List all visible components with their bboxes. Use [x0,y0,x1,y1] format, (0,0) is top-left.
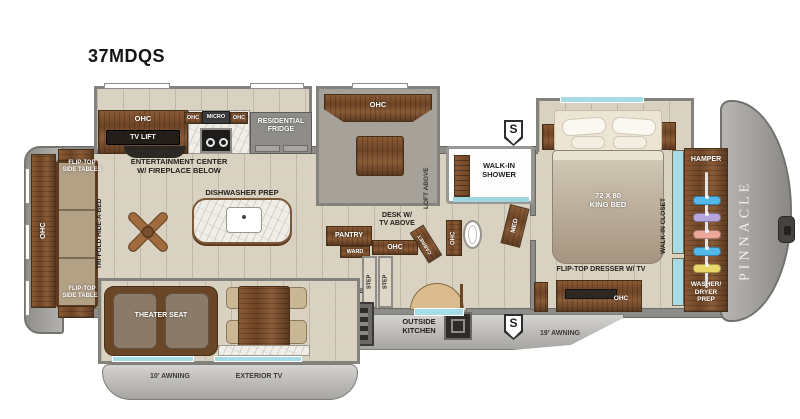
solar-badge-icon: S [504,120,523,146]
bedroom-window-icon [560,96,644,103]
hanger-icon [693,196,721,205]
hanger-icon [693,213,721,222]
flip-top-tables-label-top: FLIP-TOP SIDE TABLES [56,160,108,174]
dinette-table [238,286,290,350]
hanger-icon [693,264,721,273]
awning-19-label: 19' AWNING [528,330,592,338]
shower-mat [454,155,470,197]
tri-fold-hide-a-bed-label: TRI-FOLD HIDE-A-BED [94,178,106,290]
rear-window-icon [25,224,30,260]
ceiling-fan-icon [120,204,176,260]
rear-ohc-label: OHC [31,154,56,308]
hanger-icon [693,247,721,256]
residential-fridge-label: RESIDENTIAL FRIDGE [250,118,312,135]
bed-pillows [554,110,662,152]
awning-10-label: 10' AWNING [130,373,210,381]
loft-above-label: LOFT ABOVE [420,156,434,220]
loft-window-icon [352,83,408,89]
solar-badge-letter-2: S [506,316,521,338]
hanger-rack [693,184,721,284]
theater-seat-label: THEATER SEAT [104,312,218,320]
dishwasher-prep-label: DISHWASHER PREP [182,189,302,198]
roadside-body [102,364,358,400]
dinette-window-icon [214,356,302,362]
entertainment-center-label: ENTERTAINMENT CENTER W/ FIREPLACE BELOW [104,158,254,176]
tv-lift-label: TV LIFT [106,134,180,142]
kitchen-island [192,198,292,244]
flip-top-table-bottom [58,306,94,318]
dresser-ohc-label: OHC [604,295,638,303]
hamper-label: HAMPER [684,156,728,164]
bath-ohc-label: OHC [446,220,462,256]
hitch-pin-icon [778,216,795,243]
flip-top-dresser-label: FLIP-TOP DRESSER W/ TV [540,266,662,274]
king-bed-label: 72 X 80 KING BED [566,192,650,210]
walk-in-closet-label: WALK-IN CLOSET [658,188,670,264]
wardrobe-mirror-upper [672,150,684,254]
floorplan-canvas: 37MDQS OHC FLIP-TOP SIDE TABLES FLIP-TOP… [0,0,800,419]
toilet-icon [463,220,482,249]
step-label-2: STEP [378,256,393,308]
outside-kitchen-grill-icon [444,312,472,340]
flip-counter [218,345,310,356]
counter-ohc-right-label: OHC [230,115,248,121]
page-title: 37MDQS [88,46,208,67]
desk-ohc-label: OHC [372,244,418,252]
washer-dryer-prep-label: WASHER/ DRYER PREP [684,281,728,304]
wardrobe-mirror-lower [672,258,684,306]
wardrobe-label: WARD [340,249,370,255]
rear-window-icon [25,280,30,316]
cooktop-icon [200,128,232,153]
bedroom-chest [534,282,548,312]
kitchen-ohc-label: OHC [98,115,188,124]
outside-kitchen-label: OUTSIDE KITCHEN [386,318,452,336]
solar-badge-letter: S [506,122,521,144]
brand-label: PINNACLE [734,160,758,300]
microwave-label: MICRO [202,114,230,120]
pantry-label: PANTRY [326,232,372,240]
kitchen-window-icon [250,83,304,89]
entry-door-sill [414,308,464,316]
loft-ohc-label: OHC [324,101,432,110]
theater-window-icon [112,356,194,362]
exterior-tv-label: EXTERIOR TV [216,373,302,381]
shower-threshold [453,197,529,202]
rear-window-icon [25,168,30,204]
counter-ohc-left-label: OHC [184,115,202,121]
theater-seat [104,286,218,356]
walk-in-shower-label: WALK-IN SHOWER [470,162,528,180]
faucet-icon [242,215,246,219]
hanger-icon [693,230,721,239]
loft-table [356,136,404,176]
kitchen-window-icon [104,83,170,89]
